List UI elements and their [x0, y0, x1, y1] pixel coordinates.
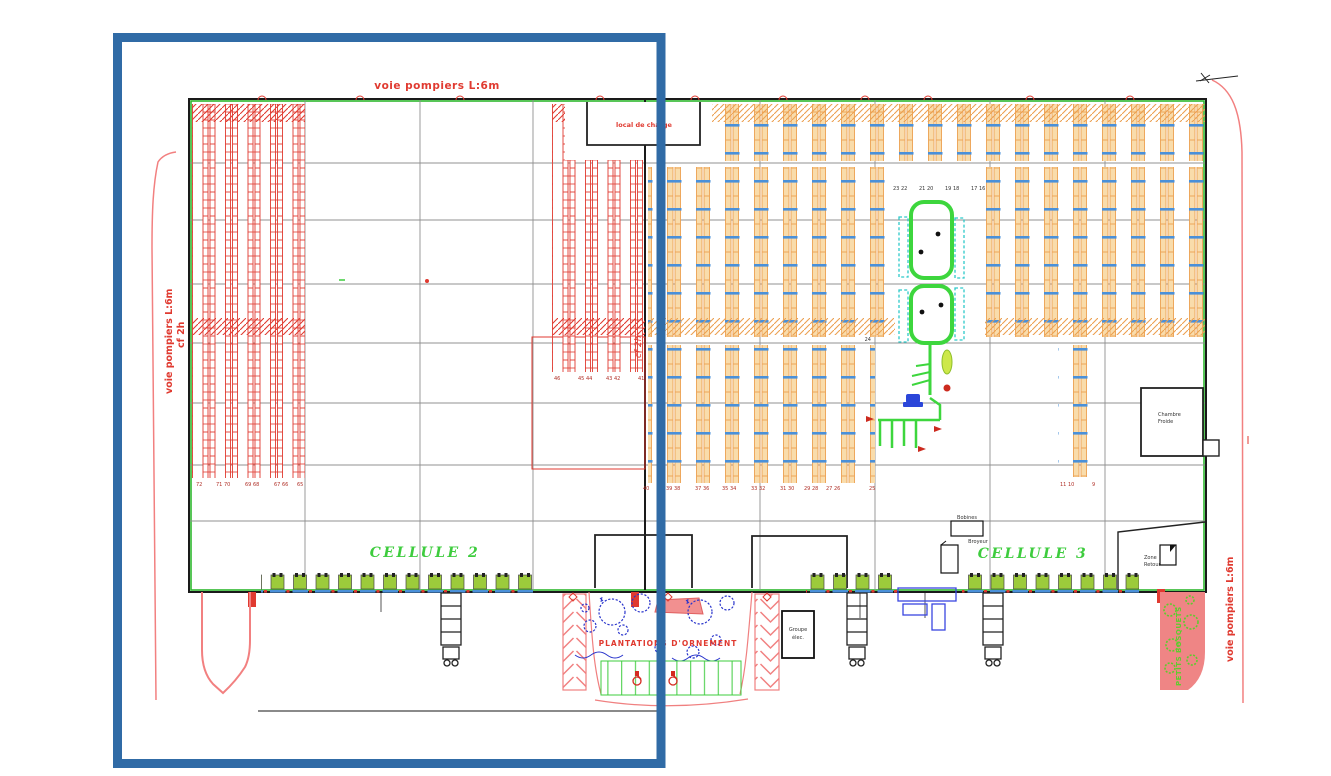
svg-text:19 18: 19 18: [945, 186, 959, 192]
svg-text:11 10: 11 10: [1060, 482, 1074, 488]
svg-text:Groupe: Groupe: [789, 627, 807, 633]
svg-text:39 38: 39 38: [666, 486, 680, 492]
svg-text:33 32: 33 32: [751, 486, 765, 492]
svg-text:41: 41: [638, 376, 644, 382]
fire-lane-right-label: voie pompiers L:6m: [1225, 556, 1236, 662]
svg-text:Froide: Froide: [1158, 419, 1173, 425]
svg-text:élec.: élec.: [792, 634, 804, 641]
landscape-area: PLANTATIONS D'ORNEMENT: [563, 592, 779, 706]
svg-text:25: 25: [869, 486, 875, 492]
site-plan-svg: voie pompiers L:6m voie pompiers L:6m cf…: [0, 0, 1331, 776]
svg-text:69 68: 69 68: [245, 482, 259, 488]
fire-lane-left-label: voie pompiers L:6m cf 2h: [164, 288, 187, 394]
svg-text:40: 40: [643, 486, 649, 492]
truck: [441, 593, 461, 666]
cell3-label: CELLULE 3: [978, 546, 1089, 562]
svg-text:35 34: 35 34: [722, 486, 736, 492]
svg-text:17 16: 17 16: [971, 186, 985, 192]
bobines-label: Bobines: [957, 515, 977, 521]
svg-text:21 20: 21 20: [919, 186, 933, 192]
svg-text:cf 2h: cf 2h: [176, 321, 187, 348]
plantations-label: PLANTATIONS D'ORNEMENT: [599, 639, 738, 648]
cold-room: Chambre Froide: [1141, 388, 1219, 456]
floor-plan-canvas: voie pompiers L:6m voie pompiers L:6m cf…: [0, 0, 1331, 776]
svg-text:Zone: Zone: [1144, 555, 1157, 561]
svg-text:31 30: 31 30: [780, 486, 794, 492]
svg-text:23 22: 23 22: [893, 186, 907, 192]
svg-text:Retour: Retour: [1144, 562, 1162, 568]
truck: [983, 593, 1003, 666]
truck: [847, 593, 867, 666]
survey-tick: [1196, 76, 1238, 81]
charge-room: local de charge: [587, 102, 700, 145]
survey-dot: [425, 279, 429, 283]
turning-area-outline: [202, 592, 250, 693]
dock-posts: [381, 593, 925, 618]
svg-text:46: 46: [554, 376, 560, 382]
bosquets-label: PETITS BOSQUETS: [1175, 606, 1183, 686]
generator-box: Groupe élec.: [782, 611, 814, 658]
svg-text:37 36: 37 36: [695, 486, 709, 492]
aisle-marker: 24: [865, 337, 871, 343]
dock-doors-right-b: [962, 572, 1139, 593]
cell2-label: CELLULE 2: [370, 545, 481, 561]
dock-doors-right-a: [806, 572, 897, 593]
svg-text:72: 72: [196, 482, 202, 488]
svg-text:9: 9: [1092, 482, 1095, 488]
svg-text:29 28: 29 28: [804, 486, 818, 492]
racks-left-red: [192, 104, 305, 478]
svg-text:67 66: 67 66: [274, 482, 288, 488]
svg-text:voie pompiers L:6m: voie pompiers L:6m: [164, 288, 175, 394]
petits-bosquets-area: PETITS BOSQUETS: [1160, 592, 1205, 690]
fire-lane-top-label: voie pompiers L:6m: [374, 80, 500, 92]
conveyor-machine: [906, 394, 920, 403]
svg-text:43 42: 43 42: [606, 376, 620, 382]
dock-doors-left: [261, 572, 533, 593]
svg-text:71 70: 71 70: [216, 482, 230, 488]
svg-text:65: 65: [297, 482, 303, 488]
svg-text:27 26: 27 26: [826, 486, 840, 492]
svg-text:45 44: 45 44: [578, 376, 592, 382]
survey-cross-icon: [1200, 73, 1210, 83]
fire-lane-left-line: [152, 152, 176, 700]
firewall-note-label: cf 2h: [634, 335, 644, 358]
dock-equipment: [898, 588, 956, 630]
broyeur-label: Broyeur: [968, 539, 989, 545]
svg-text:Chambre: Chambre: [1158, 412, 1181, 418]
